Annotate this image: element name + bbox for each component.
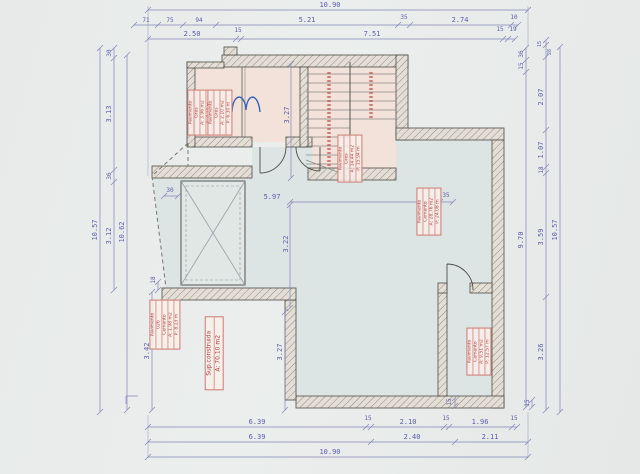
dim-label: 3.27 <box>283 107 291 124</box>
dim-label: 2.40 <box>404 433 421 441</box>
dim-label: 28 <box>547 49 553 55</box>
dim-label: 18 <box>150 276 157 284</box>
dim-label: 75 <box>166 17 174 24</box>
room-label-stairs: Pavimento Gres A: 14.44 m2 P: 15.94 m <box>337 135 362 183</box>
dim-label: 36 <box>106 172 113 180</box>
dim-label: 15 <box>234 27 242 34</box>
dim-label: 10 <box>510 14 518 21</box>
dim-label: 5.97 <box>264 193 281 201</box>
dim-label: 19 <box>509 26 517 33</box>
dim-label: 30 <box>166 187 174 194</box>
dim-label: 15 <box>442 415 450 422</box>
dim-label: 1.96 <box>472 418 489 426</box>
dim-label: 2.10 <box>400 418 417 426</box>
built-area-title: Sup.construida <box>206 317 214 389</box>
dim-label: 15 <box>510 415 518 422</box>
dim-label: 35 <box>442 192 450 199</box>
room-label-row: P: 24.08 m <box>435 189 441 235</box>
dim-label: 3.22 <box>282 236 290 253</box>
dim-label: 71 <box>142 17 150 24</box>
dim-label: 9.70 <box>517 232 525 249</box>
dim-label: 3.13 <box>105 106 113 123</box>
dim-label: 15 <box>496 26 504 33</box>
dim-label: 3.27 <box>276 344 284 361</box>
dim-label: 10.90 <box>319 448 340 456</box>
dim-label: 10.57 <box>551 219 559 240</box>
room-label-row: P: 12.57 m <box>485 329 491 375</box>
room-label-row: P: 6.30 m <box>226 91 232 135</box>
dim-label: 15 <box>364 415 372 422</box>
shaft-with-cross <box>181 181 245 285</box>
dim-label: 35 <box>400 14 408 21</box>
dim-label: 5.21 <box>299 16 316 24</box>
dim-label: 15 <box>518 62 525 70</box>
dim-label: 30 <box>106 49 113 57</box>
room-label-b: Pavimento Gres A: 2.10 m2 P: 6.30 m <box>207 90 232 136</box>
floor-plan-sheet: 10.90 71 75 94 5.21 35 2.74 10 2.50 15 7… <box>0 0 640 474</box>
dim-label: 2.07 <box>537 89 545 106</box>
dim-label: 10.90 <box>319 1 340 9</box>
built-area-value: A: 70.10 m2 <box>214 317 223 389</box>
room-label-store: Pavimento 026 Cemento A: 1.98 m2 P: 8.13… <box>149 300 180 350</box>
dim-label: 10.57 <box>91 219 99 240</box>
dim-label: 6.39 <box>249 433 266 441</box>
corner-mark <box>126 396 138 404</box>
dim-label: 2.11 <box>482 433 499 441</box>
dim-label: 18 <box>538 166 545 174</box>
dim-label: 15 <box>524 399 531 407</box>
dim-label: 7.51 <box>364 30 381 38</box>
dim-label: 15 <box>537 41 543 47</box>
dim-label: 3.12 <box>105 228 113 245</box>
room-label-row: P: 15.94 m <box>356 136 362 182</box>
dim-label: 36 <box>518 50 525 58</box>
room-label-garage: Pavimento Cemento A: 9.51 m2 P: 12.57 m <box>466 328 491 376</box>
built-area-label: Sup.construida A: 70.10 m2 <box>205 316 224 390</box>
dim-label: 2.74 <box>452 16 469 24</box>
dim-label: 10.62 <box>118 221 126 242</box>
dim-label: 94 <box>195 17 203 24</box>
dim-label: 15 <box>446 398 453 406</box>
dim-label: 6.39 <box>249 418 266 426</box>
dim-label: 3.59 <box>537 229 545 246</box>
floor-plan-drawing: 10.90 71 75 94 5.21 35 2.74 10 2.50 15 7… <box>0 0 640 474</box>
room-label-hall: Pavimento Cemento A: 28.76 m2 P: 24.08 m <box>416 188 441 236</box>
dim-label: 1.07 <box>537 142 545 159</box>
dim-label: 2.50 <box>184 30 201 38</box>
dim-label: 3.26 <box>537 344 545 361</box>
room-label-row: P: 8.13 m <box>174 301 180 349</box>
